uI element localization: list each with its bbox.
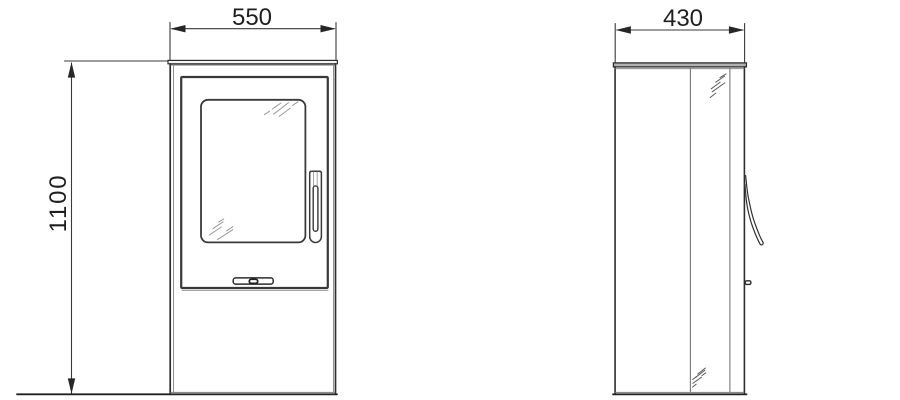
svg-text:550: 550 <box>232 4 272 31</box>
svg-text:1100: 1100 <box>45 174 72 233</box>
svg-text:430: 430 <box>663 5 703 32</box>
